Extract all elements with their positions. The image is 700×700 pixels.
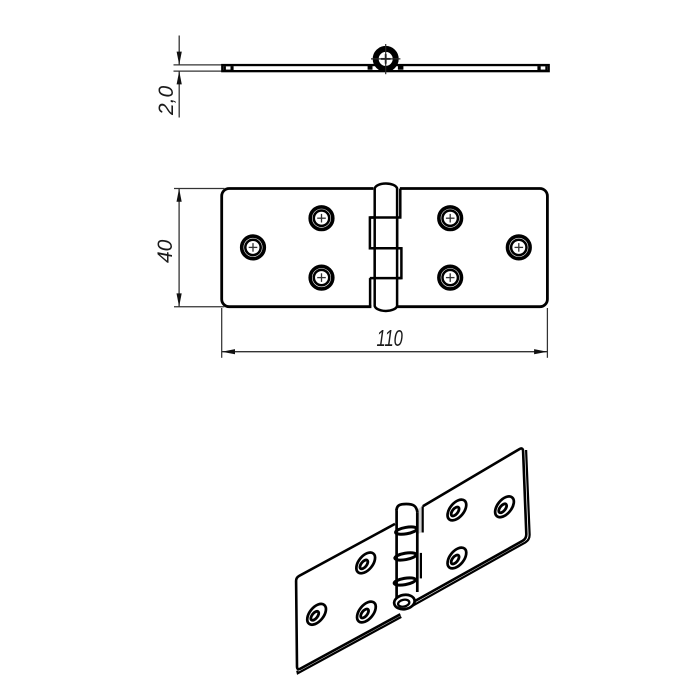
svg-text:40: 40 <box>154 239 177 263</box>
svg-text:110: 110 <box>377 326 403 351</box>
svg-text:2,0: 2,0 <box>155 85 178 116</box>
